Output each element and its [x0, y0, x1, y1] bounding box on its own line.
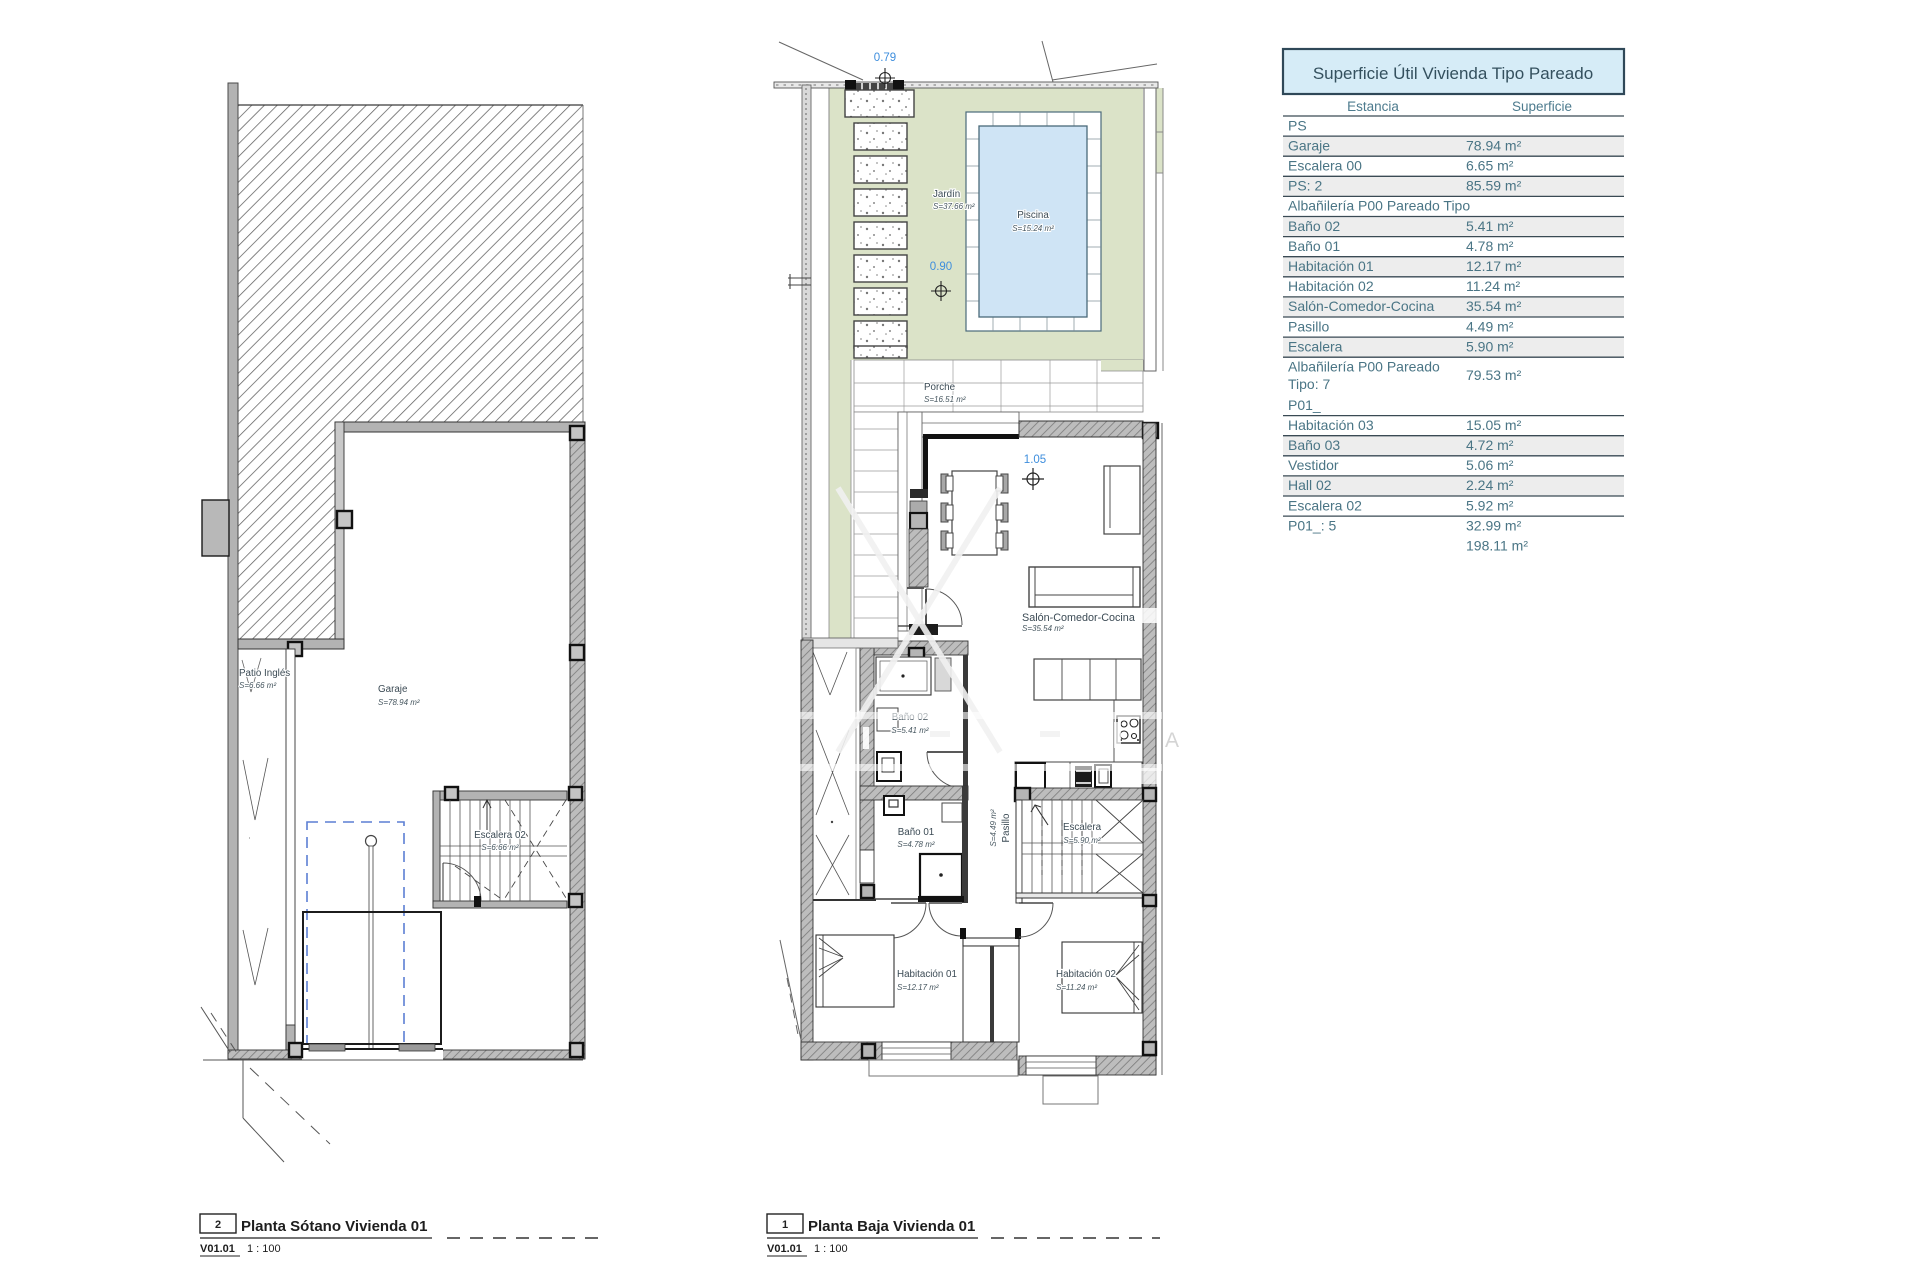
- svg-text:S=12.17 m²: S=12.17 m²: [897, 983, 939, 992]
- svg-text:Baño 02: Baño 02: [1288, 218, 1340, 234]
- svg-text:S=37.66 m²: S=37.66 m²: [933, 202, 975, 211]
- svg-text:Superficie Útil Vivienda Tipo: Superficie Útil Vivienda Tipo Pareado: [1313, 64, 1593, 83]
- svg-text:0.90: 0.90: [930, 261, 952, 273]
- svg-text:32.99 m²: 32.99 m²: [1466, 517, 1522, 533]
- svg-text:Superficie: Superficie: [1512, 99, 1572, 114]
- svg-text:5.90 m²: 5.90 m²: [1466, 338, 1514, 354]
- svg-text:S=78.94 m²: S=78.94 m²: [378, 698, 420, 707]
- svg-text:Escalera: Escalera: [1288, 338, 1343, 354]
- svg-text:5.06 m²: 5.06 m²: [1466, 457, 1514, 473]
- svg-text:V01.01: V01.01: [200, 1243, 235, 1255]
- svg-text:12.17 m²: 12.17 m²: [1466, 258, 1522, 274]
- svg-text:S=5.41 m²: S=5.41 m²: [891, 726, 928, 735]
- svg-text:S=4.49 m²: S=4.49 m²: [989, 809, 998, 846]
- svg-text:4.72 m²: 4.72 m²: [1466, 437, 1514, 453]
- svg-text:4.78 m²: 4.78 m²: [1466, 238, 1514, 254]
- svg-text:Garaje: Garaje: [378, 684, 408, 695]
- svg-text:Porche: Porche: [924, 382, 956, 393]
- svg-text:Planta Sótano Vivienda 01: Planta Sótano Vivienda 01: [241, 1218, 427, 1235]
- svg-text:Jardín: Jardín: [933, 189, 960, 200]
- svg-text:S=35.54 m²: S=35.54 m²: [1022, 624, 1064, 633]
- svg-text:Habitación 02: Habitación 02: [1056, 969, 1116, 980]
- svg-text:Vestidor: Vestidor: [1288, 457, 1339, 473]
- svg-text:P01_: P01_: [1288, 397, 1321, 413]
- svg-text:Habitación 01: Habitación 01: [897, 969, 957, 980]
- svg-text:1: 1: [782, 1219, 788, 1231]
- svg-text:79.53 m²: 79.53 m²: [1466, 367, 1522, 383]
- svg-text:PS: 2: PS: 2: [1288, 178, 1322, 194]
- svg-text:Albañilería P00 Pareado: Albañilería P00 Pareado: [1288, 359, 1440, 375]
- svg-text:4.49 m²: 4.49 m²: [1466, 318, 1514, 334]
- svg-text:Piscina: Piscina: [1017, 210, 1049, 221]
- svg-text:Pasillo: Pasillo: [1288, 318, 1329, 334]
- svg-text:S=4.78 m²: S=4.78 m²: [897, 840, 934, 849]
- svg-text:Escalera: Escalera: [1063, 822, 1102, 833]
- svg-text:5.92 m²: 5.92 m²: [1466, 497, 1514, 513]
- svg-text:Hall 02: Hall 02: [1288, 477, 1332, 493]
- svg-text:35.54 m²: 35.54 m²: [1466, 298, 1522, 314]
- svg-text:Baño 01: Baño 01: [898, 827, 935, 838]
- svg-text:11.24 m²: 11.24 m²: [1466, 278, 1521, 294]
- svg-text:Habitación 02: Habitación 02: [1288, 278, 1374, 294]
- svg-text:S=5.90 m²: S=5.90 m²: [1063, 836, 1100, 845]
- svg-text:Albañilería P00 Pareado Tipo: Albañilería P00 Pareado Tipo: [1288, 198, 1470, 214]
- svg-text:Escalera 02: Escalera 02: [1288, 497, 1362, 513]
- svg-text:Habitación 03: Habitación 03: [1288, 417, 1374, 433]
- svg-text:P01_: 5: P01_: 5: [1288, 517, 1336, 533]
- svg-text:S=6.66 m²: S=6.66 m²: [239, 681, 276, 690]
- svg-text:S=6.66 m²: S=6.66 m²: [481, 843, 518, 852]
- svg-text:S=11.24 m²: S=11.24 m²: [1056, 983, 1097, 992]
- svg-text:Salón-Comedor-Cocina: Salón-Comedor-Cocina: [1288, 298, 1435, 314]
- svg-text:Escalera 00: Escalera 00: [1288, 158, 1362, 174]
- svg-text:198.11 m²: 198.11 m²: [1466, 538, 1528, 554]
- svg-text:Baño 01: Baño 01: [1288, 238, 1340, 254]
- svg-text:V01.01: V01.01: [767, 1243, 802, 1255]
- svg-text:Garaje: Garaje: [1288, 137, 1330, 153]
- svg-text:A: A: [1165, 729, 1179, 752]
- svg-text:1 : 100: 1 : 100: [814, 1243, 848, 1255]
- svg-text:1 : 100: 1 : 100: [247, 1243, 281, 1255]
- svg-text:2.24 m²: 2.24 m²: [1466, 477, 1514, 493]
- svg-text:S=16.51 m²: S=16.51 m²: [924, 395, 966, 404]
- svg-text:PS: PS: [1288, 117, 1307, 133]
- svg-text:2: 2: [215, 1219, 221, 1231]
- svg-text:Pasillo: Pasillo: [1001, 813, 1012, 842]
- svg-text:15.05 m²: 15.05 m²: [1466, 417, 1522, 433]
- svg-text:0.79: 0.79: [874, 52, 896, 64]
- svg-text:Planta Baja Vivienda 01: Planta Baja Vivienda 01: [808, 1218, 975, 1235]
- svg-text:Salón-Comedor-Cocina: Salón-Comedor-Cocina: [1022, 612, 1135, 624]
- svg-text:Habitación 01: Habitación 01: [1288, 258, 1374, 274]
- svg-text:Escalera 02: Escalera 02: [474, 830, 526, 841]
- svg-text:Baño 03: Baño 03: [1288, 437, 1340, 453]
- svg-text:5.41 m²: 5.41 m²: [1466, 218, 1514, 234]
- svg-text:6.65 m²: 6.65 m²: [1466, 158, 1514, 174]
- svg-text:1.05: 1.05: [1024, 454, 1046, 466]
- svg-text:S=15.24 m²: S=15.24 m²: [1012, 224, 1054, 233]
- svg-text:Patio Inglés: Patio Inglés: [239, 668, 290, 679]
- svg-text:85.59 m²: 85.59 m²: [1466, 178, 1522, 194]
- svg-text:78.94 m²: 78.94 m²: [1466, 137, 1522, 153]
- svg-text:Tipo: 7: Tipo: 7: [1288, 376, 1330, 392]
- svg-text:Estancia: Estancia: [1347, 99, 1399, 114]
